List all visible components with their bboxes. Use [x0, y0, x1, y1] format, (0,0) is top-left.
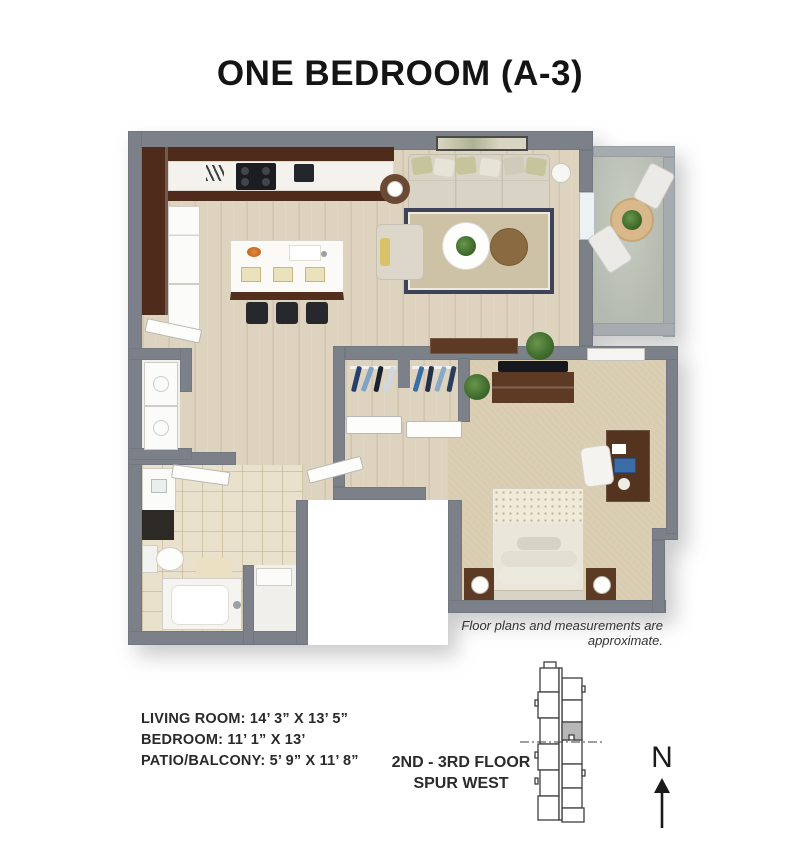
- throw-pillow: [455, 156, 477, 175]
- window-sill: [587, 348, 645, 361]
- bedroom-dimensions: BEDROOM: 11’ 1” X 13’: [141, 730, 359, 751]
- fruit-bowl: [247, 247, 261, 257]
- hanging-clothes: [412, 364, 456, 396]
- bed-pillow: [501, 551, 577, 567]
- wall: [180, 348, 192, 392]
- wall: [448, 600, 666, 613]
- refrigerator: [168, 206, 200, 284]
- site-unit: [540, 718, 559, 744]
- wall: [243, 565, 254, 645]
- island-faucet: [321, 251, 327, 257]
- wall: [398, 358, 410, 388]
- wall: [333, 487, 426, 500]
- closet-sliding-door: [406, 421, 462, 438]
- floor-location-label: 2ND - 3RD FLOOR SPUR WEST: [382, 752, 540, 794]
- floor-plan-render: [0, 0, 800, 847]
- bed-pillow: [499, 567, 579, 585]
- throw-pillow: [479, 158, 501, 178]
- duvet-pattern-band: [493, 489, 583, 523]
- site-unit: [538, 796, 559, 820]
- north-arrow-icon: [647, 776, 677, 830]
- bedroom-plant: [464, 374, 490, 400]
- nightstand-lamp: [471, 576, 489, 594]
- vanity-sink: [151, 479, 167, 493]
- site-balcony-notch: [535, 752, 538, 758]
- desk: [606, 430, 650, 502]
- hanging-clothes-item: [434, 366, 447, 392]
- closet-sliding-door: [346, 416, 402, 434]
- placemat: [273, 267, 293, 282]
- site-unit: [540, 770, 559, 796]
- placemat: [241, 267, 261, 282]
- desk-plate: [618, 478, 630, 490]
- tub-basin: [171, 585, 229, 625]
- balcony-railing: [593, 146, 675, 157]
- placemat: [305, 267, 325, 282]
- coffee-table-plant: [456, 236, 476, 256]
- wall-art: [436, 136, 528, 151]
- round-ottoman: [490, 228, 528, 266]
- tv: [498, 361, 568, 372]
- knife-decor: [206, 165, 224, 181]
- site-balcony-notch: [582, 770, 585, 776]
- site-unit: [540, 668, 559, 692]
- wall: [448, 500, 462, 613]
- kitchen-left-cabinet: [142, 147, 168, 315]
- kitchen-countertop: [168, 161, 394, 191]
- site-unit: [562, 700, 582, 722]
- hanging-clothes-item: [425, 366, 434, 392]
- living-room-plant: [526, 332, 554, 360]
- kitchen-base-cabinets: [168, 191, 394, 201]
- dresser: [492, 372, 574, 403]
- hanging-clothes-item: [446, 366, 456, 392]
- shower-head: [233, 601, 241, 609]
- burner: [262, 167, 270, 175]
- headboard: [493, 590, 583, 600]
- linen-shelf: [256, 568, 292, 586]
- kitchen-island: [230, 240, 344, 300]
- island-sink: [289, 245, 321, 261]
- bed: [492, 488, 584, 600]
- living-room-dimensions: LIVING ROOM: 14’ 3” X 13’ 5”: [141, 709, 359, 730]
- desk-paper: [612, 444, 626, 454]
- patio-balcony-dimensions: PATIO/BALCONY: 5’ 9” X 11’ 8”: [141, 751, 359, 772]
- armchair: [376, 224, 424, 280]
- floor-label-line2: SPUR WEST: [382, 773, 540, 794]
- toilet-bowl: [156, 547, 184, 571]
- burner: [262, 178, 270, 186]
- bed-pillow: [517, 537, 561, 550]
- site-unit: [562, 678, 582, 700]
- hanging-clothes-item: [413, 366, 425, 392]
- site-corridor: [559, 668, 562, 820]
- coffee-maker: [294, 164, 314, 182]
- site-unit: [562, 764, 582, 788]
- nightstand: [586, 568, 616, 600]
- nightstand-lamp: [593, 576, 611, 594]
- console-table: [430, 338, 518, 354]
- hanging-clothes: [350, 364, 396, 396]
- throw-pillow: [503, 156, 525, 176]
- dryer-drum: [153, 420, 169, 436]
- floor-lamp: [551, 163, 571, 183]
- patio-plant: [622, 210, 642, 230]
- accent-pillow: [380, 238, 390, 266]
- burner: [241, 167, 249, 175]
- north-label: N: [640, 742, 684, 774]
- bar-stool: [276, 302, 298, 324]
- desk-chair: [579, 444, 614, 488]
- burner: [241, 178, 249, 186]
- disclaimer-text: Floor plans and measurements are approxi…: [413, 618, 663, 648]
- wall: [666, 346, 678, 534]
- bar-stool: [246, 302, 268, 324]
- site-balcony-notch: [535, 700, 538, 706]
- wall: [579, 150, 593, 192]
- site-unit: [538, 744, 559, 770]
- balcony-railing: [593, 323, 675, 336]
- site-unit: [538, 692, 559, 718]
- hanging-clothes-item: [373, 366, 383, 392]
- dryer: [144, 406, 178, 450]
- vanity-counter: [142, 510, 174, 540]
- washer: [144, 362, 178, 406]
- site-balcony-notch: [582, 686, 585, 692]
- site-unit: [562, 808, 584, 822]
- nightstand: [464, 568, 494, 600]
- throw-pillow: [411, 156, 433, 176]
- throw-pillow: [525, 157, 547, 177]
- wall: [128, 131, 142, 645]
- floor-label-line1: 2ND - 3RD FLOOR: [382, 752, 540, 773]
- sofa: [408, 154, 550, 214]
- wall: [296, 500, 308, 645]
- site-balcony-notch: [535, 778, 538, 784]
- washer-drum: [153, 376, 169, 392]
- site-unit: [562, 788, 582, 808]
- hanging-clothes-item: [361, 366, 375, 392]
- hanging-clothes-item: [383, 366, 396, 392]
- sliding-glass-door: [579, 192, 595, 240]
- bathtub: [162, 578, 242, 630]
- wall: [128, 631, 308, 645]
- wall: [652, 540, 665, 613]
- bar-stool: [306, 302, 328, 324]
- north-compass: N: [640, 742, 684, 830]
- laptop: [614, 458, 636, 473]
- table-lamp: [387, 181, 403, 197]
- wall: [579, 238, 593, 346]
- highlighted-unit-a3: [562, 722, 582, 740]
- cooktop: [236, 163, 276, 190]
- throw-pillow: [433, 158, 455, 177]
- dimensions-block: LIVING ROOM: 14’ 3” X 13’ 5” BEDROOM: 11…: [141, 709, 359, 772]
- kitchen-upper-cabinets: [168, 147, 394, 161]
- site-map: [518, 650, 618, 835]
- site-unit: [562, 740, 582, 764]
